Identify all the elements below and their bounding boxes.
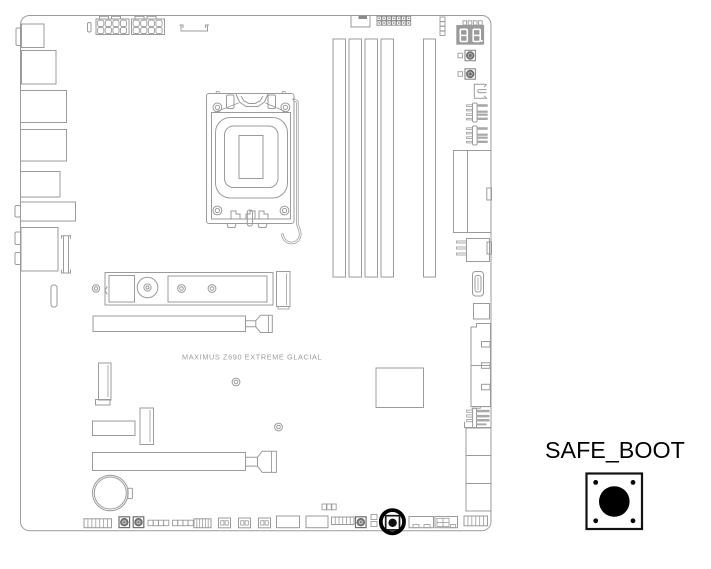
svg-text:SAFE_BOOT: SAFE_BOOT xyxy=(545,437,685,463)
svg-text:MAXIMUS Z690 EXTREME GLACIAL: MAXIMUS Z690 EXTREME GLACIAL xyxy=(182,353,322,362)
